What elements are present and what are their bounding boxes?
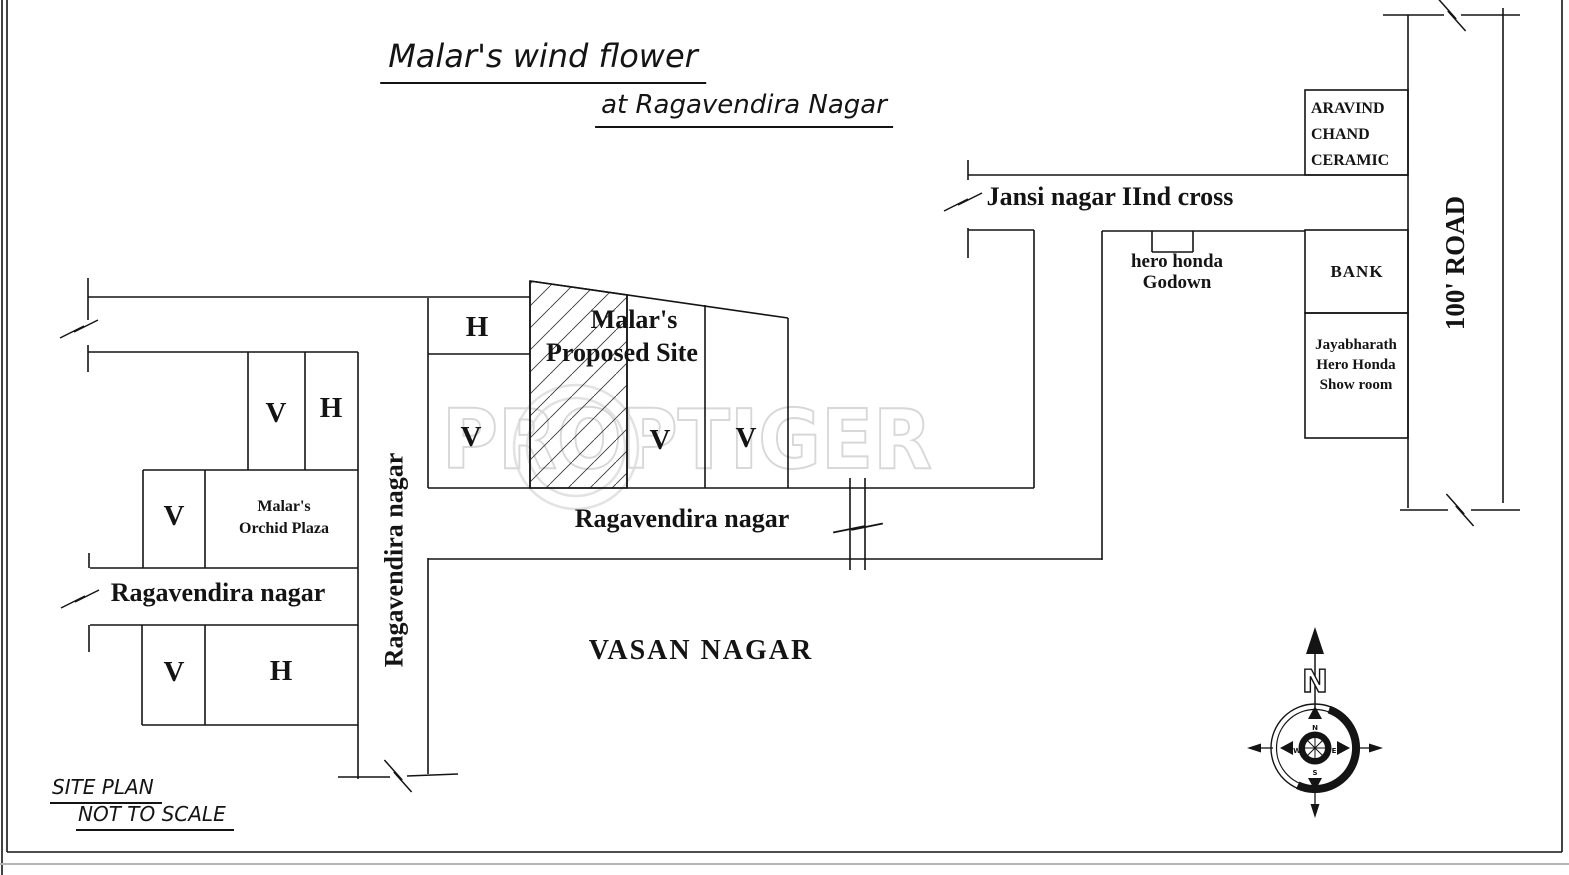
plot-left-v: V — [266, 398, 287, 428]
building-jayabharath-showroom: Jayabharath Hero Honda Show room — [1315, 335, 1397, 395]
site-plan-canvas: PROPTIGER — [0, 0, 1569, 875]
area-label-vasan-nagar: VASAN NAGAR — [589, 636, 814, 665]
compass-n-tick: N — [1312, 724, 1318, 732]
compass-s-tick: S — [1312, 769, 1317, 777]
page-subtitle: at Ragavendira Nagar — [595, 92, 893, 119]
compass-north-label: N — [1302, 664, 1328, 700]
godown-line1: hero honda — [1131, 251, 1223, 272]
plot-central-h: H — [466, 312, 489, 342]
footer-site-plan: SITE PLAN — [50, 777, 162, 798]
road-label-ragavendira-mid: Ragavendira nagar — [575, 505, 790, 532]
building-aravind-chand-ceramic: ARAVIND CHAND CERAMIC — [1311, 96, 1389, 174]
page-subtitle-text: at Ragavendira Nagar — [595, 90, 893, 128]
plot-central-v1: V — [461, 422, 482, 452]
jayabharath-line1: Jayabharath — [1315, 335, 1397, 355]
proposed-site-line1: Malar's — [591, 306, 678, 333]
plot-bottom-v: V — [164, 657, 185, 687]
watermark-text: PROPTIGER — [442, 393, 932, 488]
orchid-line1: Malar's — [239, 496, 329, 518]
aravind-line2: CHAND — [1311, 122, 1389, 148]
proposed-site-line2: Proposed Site — [546, 339, 698, 366]
compass-e-tick: E — [1332, 747, 1337, 755]
plot-orchid-v: V — [164, 501, 185, 531]
plot-central-v3: V — [736, 423, 757, 453]
aravind-line3: CERAMIC — [1311, 148, 1389, 174]
road-label-100-road: 100' ROAD — [1441, 196, 1469, 330]
jayabharath-line3: Show room — [1315, 375, 1397, 395]
building-hero-honda-godown: hero honda Godown — [1131, 251, 1223, 293]
road-label-jansi-nagar: Jansi nagar IInd cross — [987, 183, 1234, 210]
plot-central-v2: V — [650, 425, 671, 455]
plot-left-h: H — [320, 393, 343, 423]
compass-icon: N N E S W — [1247, 627, 1383, 818]
building-bank: BANK — [1330, 263, 1383, 281]
site-plan-text: SITE PLAN — [50, 775, 162, 804]
not-to-scale-text: NOT TO SCALE — [76, 802, 234, 831]
compass-w-tick: W — [1293, 747, 1301, 755]
aravind-line1: ARAVIND — [1311, 96, 1389, 122]
plot-bottom-h: H — [270, 656, 293, 686]
orchid-line2: Orchid Plaza — [239, 518, 329, 540]
proptiger-watermark: PROPTIGER — [442, 385, 932, 509]
building-orchid-plaza: Malar's Orchid Plaza — [239, 496, 329, 540]
page-title: Malar's wind flower — [380, 40, 706, 74]
road-label-ragavendira-vertical: Ragavendira nagar — [380, 453, 407, 668]
jayabharath-line2: Hero Honda — [1315, 355, 1397, 375]
godown-line2: Godown — [1131, 272, 1223, 293]
road-label-ragavendira-left: Ragavendira nagar — [111, 579, 326, 606]
footer-not-to-scale: NOT TO SCALE — [76, 804, 234, 825]
page-title-text: Malar's wind flower — [380, 37, 706, 84]
